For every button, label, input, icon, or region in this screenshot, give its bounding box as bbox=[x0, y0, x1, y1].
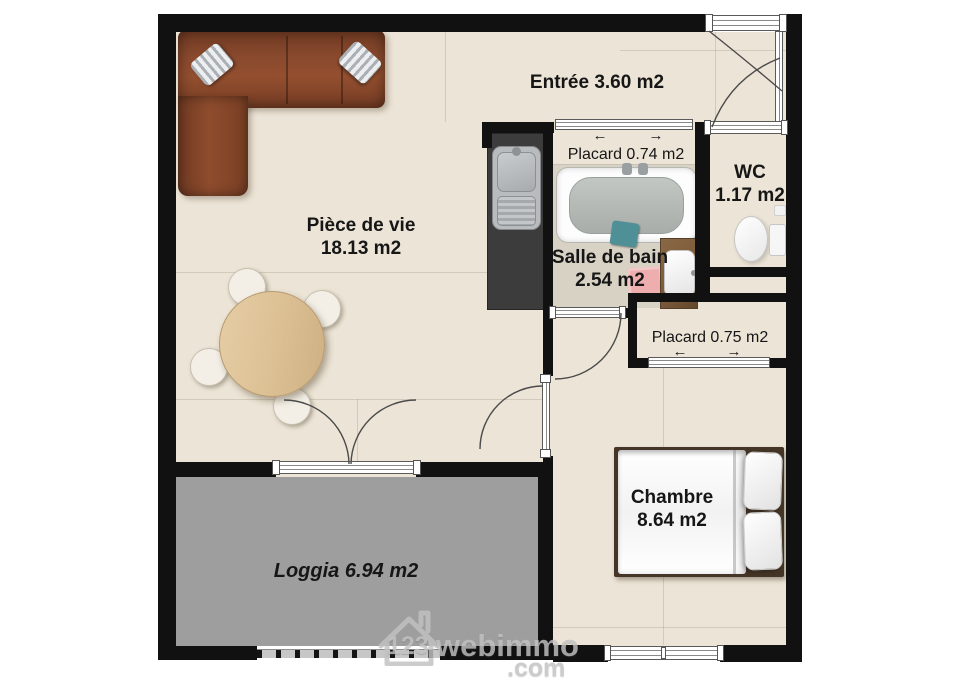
slide-arrow-left-icon: ← bbox=[588, 128, 612, 143]
sofa-cushion-seam bbox=[341, 36, 343, 104]
room-label-placard-075: Placard 0.75 m2 bbox=[630, 326, 790, 349]
window-post bbox=[661, 647, 666, 659]
wall bbox=[538, 462, 553, 660]
floor-seam bbox=[445, 32, 446, 122]
door-post bbox=[540, 449, 551, 458]
door-post bbox=[272, 460, 280, 475]
door-post bbox=[779, 14, 787, 32]
room-label-text: Entrée 3.60 m2 bbox=[497, 71, 697, 94]
room-label-wc: WC 1.17 m2 bbox=[710, 161, 790, 207]
wc-door-threshold bbox=[708, 121, 784, 134]
room-name: Pièce de vie bbox=[261, 214, 461, 237]
room-label-entree: Entrée 3.60 m2 bbox=[497, 71, 697, 94]
wall bbox=[482, 122, 492, 148]
room-name: WC bbox=[710, 161, 790, 184]
door-post bbox=[549, 306, 556, 319]
room-area: 1.17 m2 bbox=[710, 184, 790, 207]
entrance-door-leaf bbox=[775, 31, 783, 123]
wall bbox=[158, 14, 176, 660]
sofa-chaise bbox=[178, 96, 248, 196]
kitchen-sink-drainboard bbox=[497, 196, 536, 226]
closet-sliding-door bbox=[555, 119, 693, 130]
kitchen-faucet bbox=[512, 147, 521, 156]
floor-seam bbox=[620, 50, 786, 51]
toilet-bowl bbox=[734, 216, 768, 262]
room-label-placard-074: Placard 0.74 m2 bbox=[546, 143, 706, 166]
floor-seam bbox=[357, 399, 358, 462]
wall bbox=[440, 646, 553, 660]
entrance-door-threshold bbox=[708, 15, 784, 31]
room-label-text: Placard 0.75 m2 bbox=[630, 326, 790, 349]
slide-arrow-right-icon: → bbox=[722, 344, 746, 359]
wall bbox=[416, 462, 543, 477]
wall bbox=[543, 318, 553, 376]
room-name: Chambre bbox=[572, 486, 772, 509]
bathroom-door-threshold bbox=[553, 307, 623, 318]
wall bbox=[158, 462, 276, 477]
dining-table bbox=[219, 291, 325, 397]
floor-seam bbox=[176, 399, 543, 400]
loggia-railing bbox=[257, 649, 440, 658]
wall bbox=[158, 646, 257, 660]
room-label-chambre: Chambre 8.64 m2 bbox=[572, 486, 772, 532]
door-post bbox=[540, 374, 551, 383]
room-label-salle-de-bain: Salle de bain 2.54 m2 bbox=[510, 246, 710, 292]
room-label-loggia: Loggia 6.94 m2 bbox=[246, 560, 446, 583]
door-post bbox=[704, 120, 711, 135]
room-area: 8.64 m2 bbox=[572, 509, 772, 532]
room-area: 18.13 m2 bbox=[261, 237, 461, 260]
window-post bbox=[717, 645, 724, 661]
wall bbox=[720, 645, 786, 662]
kitchen-sink-basin bbox=[497, 152, 536, 192]
room-label-piece-de-vie: Pièce de vie 18.13 m2 bbox=[261, 214, 461, 260]
floor-seam bbox=[715, 32, 716, 122]
sofa-cushion-seam bbox=[286, 36, 288, 104]
room-label-text: Loggia 6.94 m2 bbox=[246, 560, 446, 583]
room-label-text: Placard 0.74 m2 bbox=[546, 143, 706, 166]
floor-plan: Entrée 3.60 m2 Pièce de vie 18.13 m2 Pla… bbox=[0, 0, 960, 679]
room-area: 2.54 m2 bbox=[510, 269, 710, 292]
bedroom-door-leaf bbox=[542, 382, 550, 452]
loggia-french-door-threshold bbox=[276, 461, 417, 474]
room-name: Salle de bain bbox=[510, 246, 710, 269]
wall bbox=[769, 358, 786, 368]
wall bbox=[158, 14, 708, 32]
wall bbox=[628, 293, 786, 302]
door-post bbox=[619, 306, 626, 319]
slide-arrow-left-icon: ← bbox=[668, 344, 692, 359]
closet-sliding-door bbox=[648, 357, 770, 368]
floor-seam bbox=[553, 627, 786, 628]
door-post bbox=[781, 120, 788, 135]
wall bbox=[553, 645, 608, 662]
door-post bbox=[705, 14, 713, 32]
slide-arrow-right-icon: → bbox=[644, 128, 668, 143]
window-post bbox=[604, 645, 611, 661]
towel bbox=[609, 220, 639, 248]
toilet-tank bbox=[769, 224, 786, 256]
door-post bbox=[413, 460, 421, 475]
